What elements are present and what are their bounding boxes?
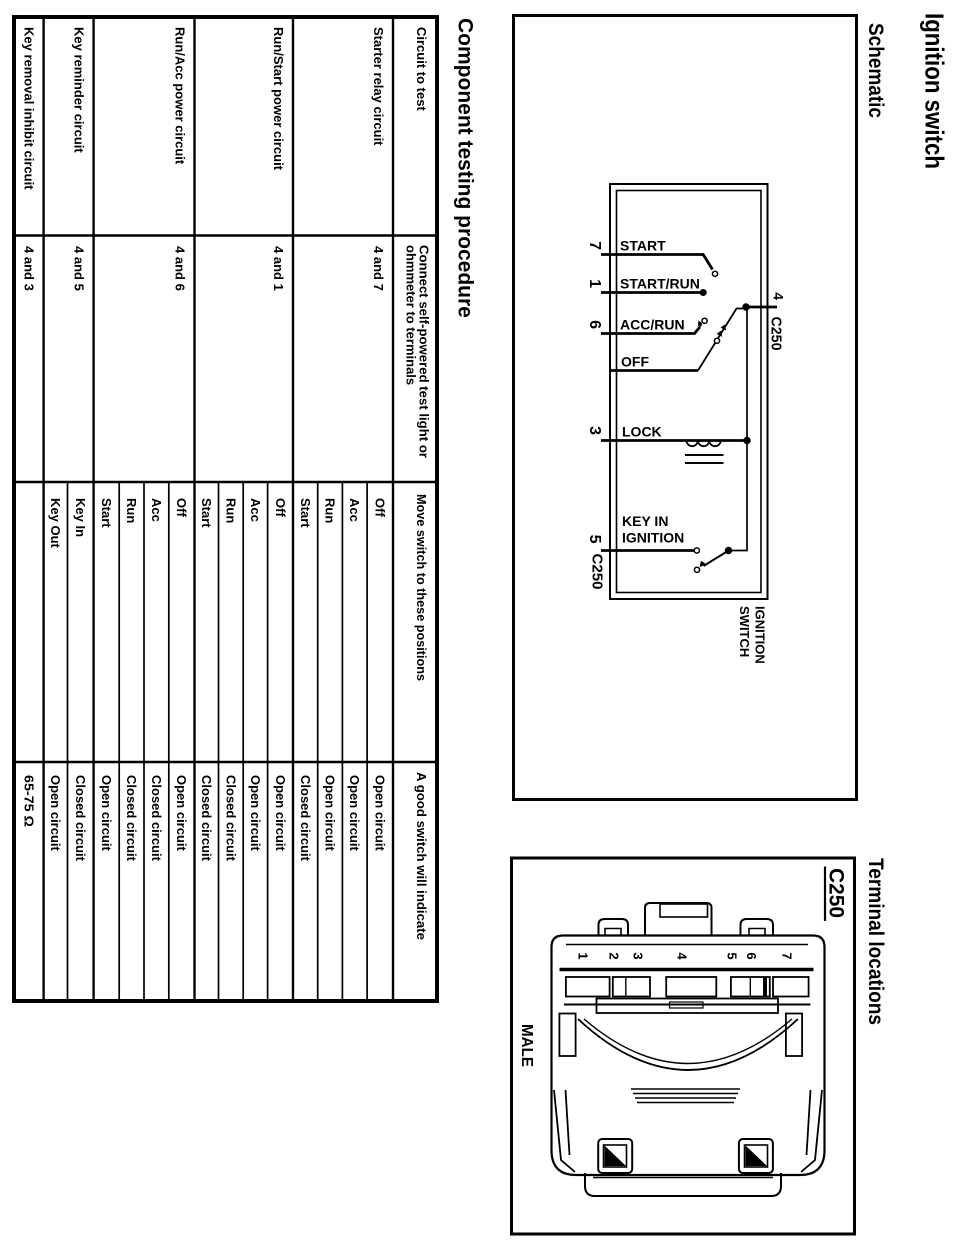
svg-text:Open circuit: Open circuit [48, 775, 63, 852]
svg-text:Open circuit: Open circuit [323, 775, 338, 852]
svg-text:Closed circuit: Closed circuit [199, 775, 214, 862]
svg-text:4: 4 [674, 952, 689, 960]
svg-text:IGNITION: IGNITION [753, 606, 768, 664]
svg-text:Off: Off [273, 498, 288, 517]
svg-text:C250: C250 [825, 868, 848, 918]
svg-text:Acc: Acc [347, 498, 362, 522]
svg-text:Run: Run [223, 498, 238, 523]
svg-text:Closed circuit: Closed circuit [298, 775, 313, 862]
svg-text:Closed circuit: Closed circuit [73, 775, 88, 862]
svg-text:IGNITION: IGNITION [622, 530, 684, 546]
svg-text:Terminal locations: Terminal locations [864, 858, 887, 1025]
svg-text:Run/Acc power circuit: Run/Acc power circuit [173, 27, 188, 165]
svg-text:4 and 1: 4 and 1 [271, 246, 286, 291]
svg-text:KEY IN: KEY IN [622, 513, 668, 529]
svg-text:LOCK: LOCK [622, 424, 662, 440]
svg-text:OFF: OFF [621, 354, 649, 370]
svg-text:Circuit to test: Circuit to test [414, 27, 429, 111]
svg-text:5: 5 [725, 952, 740, 959]
svg-text:Component testing procedure: Component testing procedure [454, 18, 477, 318]
svg-text:7: 7 [586, 241, 603, 250]
svg-text:2: 2 [606, 952, 621, 959]
svg-text:4 and 3: 4 and 3 [22, 246, 37, 291]
svg-text:Open circuit: Open circuit [273, 775, 288, 852]
svg-text:Open circuit: Open circuit [174, 775, 189, 852]
svg-text:C250: C250 [589, 554, 606, 590]
svg-text:Start: Start [298, 498, 313, 528]
svg-text:ohmmeter to terminals: ohmmeter to terminals [404, 245, 419, 385]
svg-text:Run: Run [323, 498, 338, 523]
svg-text:Off: Off [373, 498, 388, 517]
svg-text:1: 1 [576, 952, 591, 959]
svg-text:START: START [620, 238, 666, 254]
svg-text:START/RUN: START/RUN [620, 276, 700, 292]
svg-text:A good switch will indicate: A good switch will indicate [414, 772, 429, 940]
svg-text:Ignition switch: Ignition switch [920, 13, 950, 169]
svg-text:65-75 Ω: 65-75 Ω [21, 775, 36, 827]
svg-text:Key reminder circuit: Key reminder circuit [72, 27, 87, 153]
svg-text:Open circuit: Open circuit [347, 775, 362, 852]
svg-text:Closed circuit: Closed circuit [149, 775, 164, 862]
svg-text:4 and 5: 4 and 5 [72, 246, 87, 291]
svg-text:4 and 6: 4 and 6 [173, 246, 188, 291]
svg-text:Key In: Key In [73, 498, 88, 537]
svg-text:6: 6 [586, 320, 603, 329]
svg-text:Schematic: Schematic [864, 23, 887, 118]
svg-text:Off: Off [174, 498, 189, 517]
svg-text:3: 3 [586, 426, 603, 435]
svg-text:Key Out: Key Out [48, 498, 63, 549]
svg-text:ACC/RUN: ACC/RUN [620, 317, 685, 333]
svg-text:Run/Start power circuit: Run/Start power circuit [271, 27, 286, 171]
svg-text:Open circuit: Open circuit [99, 775, 114, 852]
svg-text:Start: Start [199, 498, 214, 528]
svg-text:MALE: MALE [518, 1024, 535, 1067]
svg-text:Closed circuit: Closed circuit [124, 775, 139, 862]
svg-text:4 and 7: 4 and 7 [371, 246, 386, 291]
svg-text:Closed circuit: Closed circuit [223, 775, 238, 862]
svg-text:7: 7 [780, 952, 795, 959]
svg-text:C250: C250 [768, 317, 785, 351]
svg-text:SWITCH: SWITCH [737, 606, 752, 657]
svg-text:Open circuit: Open circuit [248, 775, 263, 852]
svg-text:1: 1 [586, 279, 603, 288]
svg-text:Open circuit: Open circuit [373, 775, 388, 852]
svg-text:Start: Start [99, 498, 114, 528]
svg-text:3: 3 [631, 952, 646, 959]
svg-text:Acc: Acc [248, 498, 263, 522]
svg-text:Move switch to these positions: Move switch to these positions [414, 494, 429, 681]
svg-text:Starter relay circuit: Starter relay circuit [371, 27, 386, 146]
svg-text:Key removal inhibit circuit: Key removal inhibit circuit [22, 27, 37, 190]
svg-text:Acc: Acc [149, 498, 164, 522]
svg-text:5: 5 [586, 535, 603, 544]
svg-text:6: 6 [744, 952, 759, 959]
svg-text:4: 4 [771, 292, 787, 300]
svg-text:Run: Run [124, 498, 139, 523]
